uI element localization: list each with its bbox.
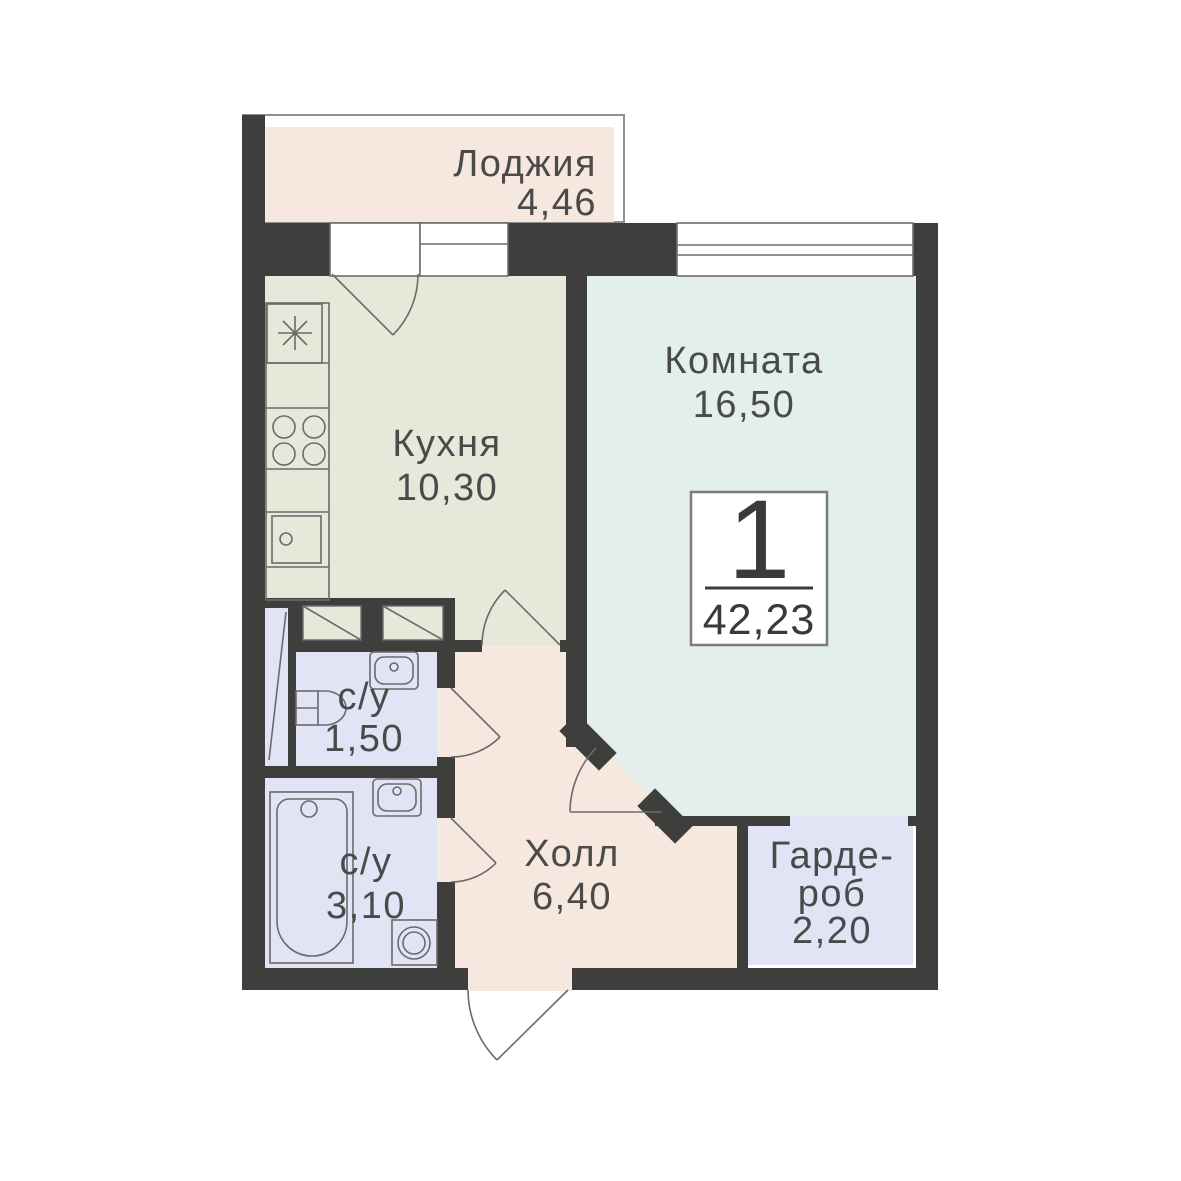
wall-bottom-segment [572, 968, 938, 990]
wall-bottom-segment [242, 968, 468, 990]
kitchen-label: Кухня [392, 423, 501, 465]
wall-room-bottom [908, 816, 916, 826]
loggia-label: Лоджия [453, 143, 597, 185]
wall-diagonal-stub [577, 731, 599, 753]
wall-top-segment [508, 223, 677, 276]
floor-plan-page: Лоджия 4,46 Кухня 10,30 Комната 16,50 с/… [0, 0, 1181, 1181]
hall-area: 6,40 [532, 876, 612, 918]
living-room-area: 16,50 [693, 384, 796, 426]
bathroom-large-label: с/у [339, 841, 392, 883]
loggia-area: 4,46 [517, 182, 597, 224]
balcony-door-opening [330, 223, 420, 276]
floor-plan: Лоджия 4,46 Кухня 10,30 Комната 16,50 с/… [0, 0, 1181, 1181]
shaft-fill [265, 608, 288, 766]
living-room-window [677, 223, 913, 276]
wall-top-segment [265, 223, 330, 276]
wardrobe-label-line2: роб [798, 873, 867, 915]
wall-kitchen-room [566, 276, 587, 747]
wall-bath-hall-stub [437, 882, 455, 968]
wall-between-bathrooms [265, 766, 455, 778]
wall-wardrobe-left [737, 816, 748, 968]
bathroom-small-label: с/у [337, 676, 390, 718]
vent-shaft [265, 608, 288, 766]
living-room-label: Комната [664, 340, 823, 382]
snowflake-icon [278, 316, 312, 350]
wall-left [242, 115, 265, 990]
wall-right [916, 223, 938, 990]
total-area: 42,23 [703, 596, 816, 644]
wall-room-bottom [655, 816, 790, 826]
hall-label: Холл [524, 833, 620, 875]
bathroom-large-area: 3,10 [326, 885, 406, 927]
entrance-door-swing [468, 990, 568, 1060]
room-count: 1 [728, 477, 790, 602]
bathroom-small-area: 1,50 [324, 718, 404, 760]
kitchen-area: 10,30 [396, 467, 499, 509]
wall-kitchen-hall [560, 640, 587, 652]
wardrobe-area: 2,20 [792, 910, 872, 952]
area-badge: 1 42,23 [691, 477, 827, 645]
wall-shaft-right [288, 608, 296, 766]
kitchen-window [420, 223, 508, 276]
wardrobe-label-line1: Гарде- [770, 835, 895, 877]
